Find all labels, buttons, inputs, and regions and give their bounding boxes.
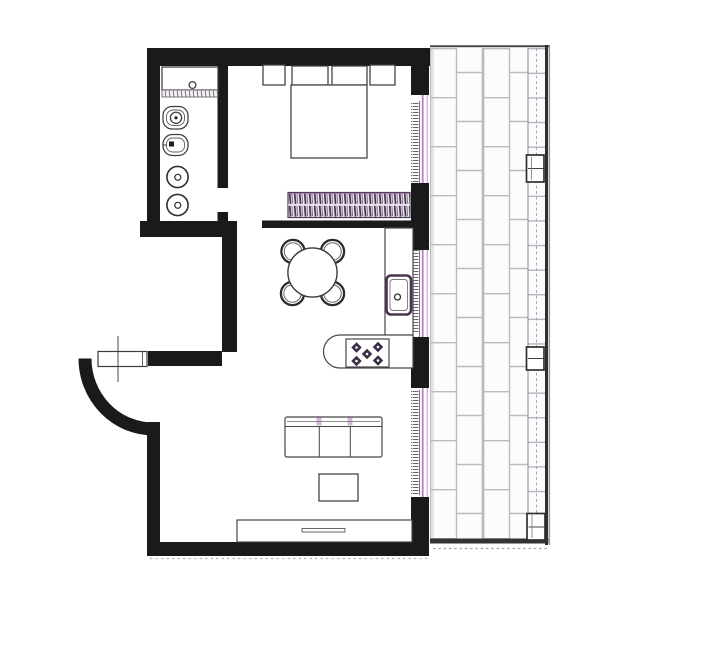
window-frame-hatch <box>411 101 419 183</box>
wall-bathroom-bottom <box>140 221 237 237</box>
vanity-front-hatch <box>162 90 218 97</box>
double-bed <box>291 85 367 158</box>
wall-bedroom-kitchen-divider <box>262 221 413 229</box>
cooktop <box>346 339 389 367</box>
pillow-left <box>292 66 328 85</box>
bedroom <box>263 65 410 218</box>
window-living-room <box>411 388 427 497</box>
terrace <box>430 45 550 549</box>
window-frame-hatch <box>411 390 419 495</box>
wall-top <box>147 48 430 66</box>
floor-plan-drawing <box>0 0 710 646</box>
wall-left-upper <box>147 48 160 237</box>
coffee-table <box>319 474 358 501</box>
terrace-right-border <box>545 45 548 545</box>
entry-door-leaf <box>98 352 147 367</box>
curved-entry-wall <box>85 359 154 430</box>
wall-entry <box>148 351 222 366</box>
edge-post-bottom <box>527 514 545 541</box>
nightstand-right <box>370 65 395 85</box>
wall-corridor-left <box>222 237 237 352</box>
entry <box>98 336 147 382</box>
wall-right-seg1 <box>411 56 429 95</box>
wardrobe-radiator <box>288 193 410 218</box>
bathroom <box>162 67 218 216</box>
bidet <box>163 135 188 156</box>
wall-right-seg2 <box>411 183 429 250</box>
dining-set <box>281 240 344 305</box>
dining-table <box>288 248 337 297</box>
wall-bathroom-door-stub <box>218 212 229 222</box>
pillow-right <box>332 66 367 85</box>
sofa <box>285 417 382 457</box>
wall-bottom <box>147 542 429 556</box>
round-fixture-1 <box>167 166 188 187</box>
floor-plan-canvas <box>0 0 710 646</box>
edge-post-middle <box>527 347 545 370</box>
wall-bathroom-bedroom-divider <box>218 66 229 188</box>
kitchen-sink <box>387 276 412 315</box>
round-fixture-2 <box>167 194 188 215</box>
vanity-sink-drain <box>189 82 196 89</box>
window-bedroom <box>411 95 427 183</box>
living-room <box>237 417 412 542</box>
wall-right-seg4 <box>411 497 429 556</box>
terrace-brick-paving <box>430 48 528 540</box>
nightstand-left <box>263 65 285 85</box>
edge-post-top <box>527 155 545 182</box>
sideboard <box>237 520 412 542</box>
wall-left-lower <box>147 422 160 556</box>
kitchen-dining <box>281 228 413 368</box>
walls <box>85 48 430 559</box>
sideboard-handle <box>302 529 345 533</box>
wall-right-seg3 <box>411 337 429 388</box>
toilet <box>163 107 188 130</box>
